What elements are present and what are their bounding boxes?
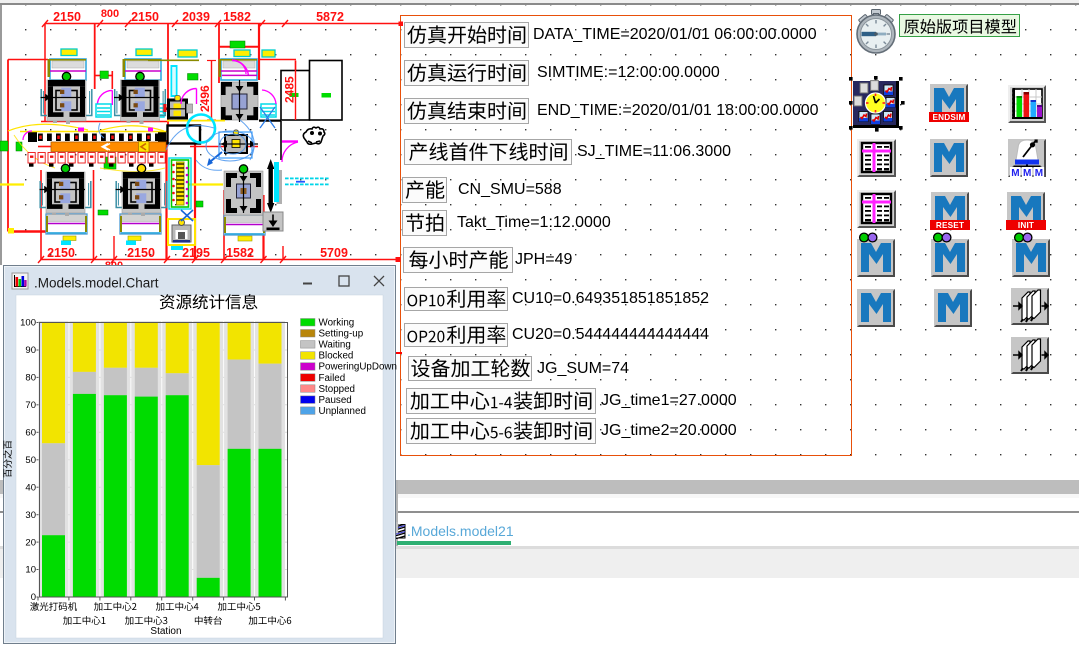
svg-text:RESET: RESET bbox=[936, 221, 964, 230]
svg-text:0: 0 bbox=[31, 592, 36, 603]
svg-text:20: 20 bbox=[25, 537, 36, 548]
svg-text:PoweringUpDown: PoweringUpDown bbox=[319, 362, 397, 373]
svg-text:50: 50 bbox=[25, 455, 36, 466]
svg-text:Stopped: Stopped bbox=[319, 384, 356, 395]
svg-text:Working: Working bbox=[319, 318, 355, 329]
svg-text:Paused: Paused bbox=[319, 395, 352, 406]
svg-text:70: 70 bbox=[25, 400, 36, 411]
svg-text:Blocked: Blocked bbox=[319, 351, 354, 362]
svg-text:M: M bbox=[1011, 168, 1019, 179]
svg-text:Station: Station bbox=[150, 626, 181, 637]
svg-text:10: 10 bbox=[25, 565, 36, 576]
svg-text:100: 100 bbox=[20, 318, 36, 329]
svg-text:60: 60 bbox=[25, 428, 36, 439]
svg-text:2150: 2150 bbox=[127, 246, 155, 260]
svg-text:INIT: INIT bbox=[1018, 221, 1034, 230]
svg-text:30: 30 bbox=[25, 510, 36, 521]
svg-text:ENDSIM: ENDSIM bbox=[932, 113, 965, 122]
svg-text:Failed: Failed bbox=[319, 373, 346, 384]
svg-text:90: 90 bbox=[25, 345, 36, 356]
svg-text:1582: 1582 bbox=[226, 246, 254, 260]
svg-text:1582: 1582 bbox=[223, 10, 251, 24]
svg-text:2195: 2195 bbox=[182, 246, 210, 260]
svg-text:5709: 5709 bbox=[320, 246, 348, 260]
svg-text:2150: 2150 bbox=[53, 10, 81, 24]
svg-text:80: 80 bbox=[25, 373, 36, 384]
svg-text:800: 800 bbox=[101, 8, 119, 20]
svg-text:M: M bbox=[1035, 168, 1043, 179]
svg-text:2150: 2150 bbox=[131, 10, 159, 24]
svg-text:2039: 2039 bbox=[182, 10, 210, 24]
svg-text:Unplanned: Unplanned bbox=[319, 406, 366, 417]
svg-text:40: 40 bbox=[25, 482, 36, 493]
svg-text:2485: 2485 bbox=[283, 76, 297, 103]
svg-text:M: M bbox=[1023, 168, 1031, 179]
svg-text:.Models.model.Chart: .Models.model.Chart bbox=[34, 276, 159, 291]
svg-text:2150: 2150 bbox=[47, 246, 75, 260]
svg-text:5872: 5872 bbox=[316, 10, 344, 24]
svg-text:2496: 2496 bbox=[198, 85, 212, 112]
svg-text:Setting-up: Setting-up bbox=[319, 329, 364, 340]
svg-text:Waiting: Waiting bbox=[319, 340, 351, 351]
